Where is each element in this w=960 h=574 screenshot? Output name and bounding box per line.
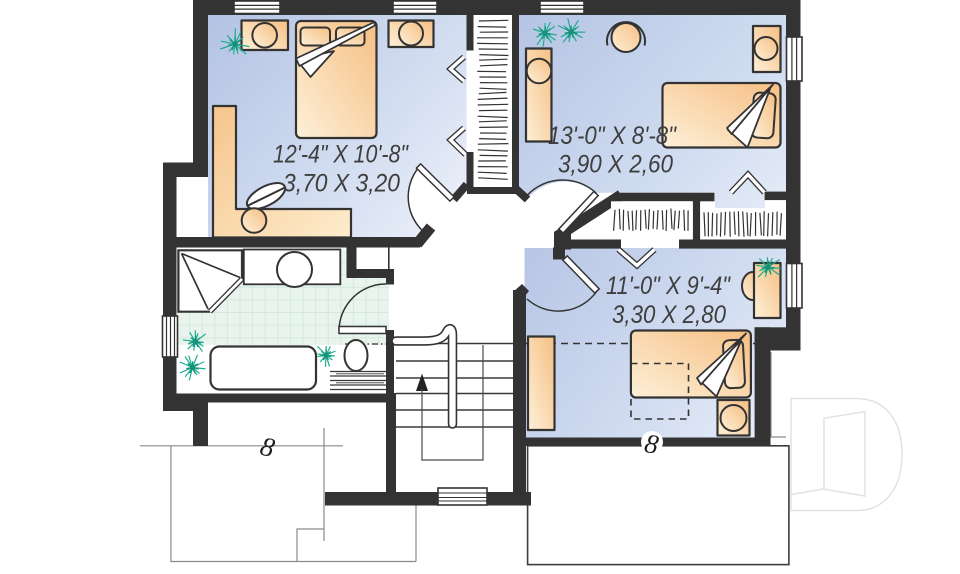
svg-text:11'-0" X 9'-4": 11'-0" X 9'-4"	[606, 272, 731, 300]
svg-text:12'-4" X 10'-8": 12'-4" X 10'-8"	[273, 141, 409, 169]
svg-text:3,30 X 2,80: 3,30 X 2,80	[612, 301, 726, 329]
svg-text:3,90 X 2,60: 3,90 X 2,60	[558, 151, 673, 179]
svg-text:13'-0" X 8'-8": 13'-0" X 8'-8"	[548, 122, 677, 150]
svg-text:8: 8	[257, 431, 278, 463]
svg-text:3,70 X 3,20: 3,70 X 3,20	[283, 170, 400, 198]
